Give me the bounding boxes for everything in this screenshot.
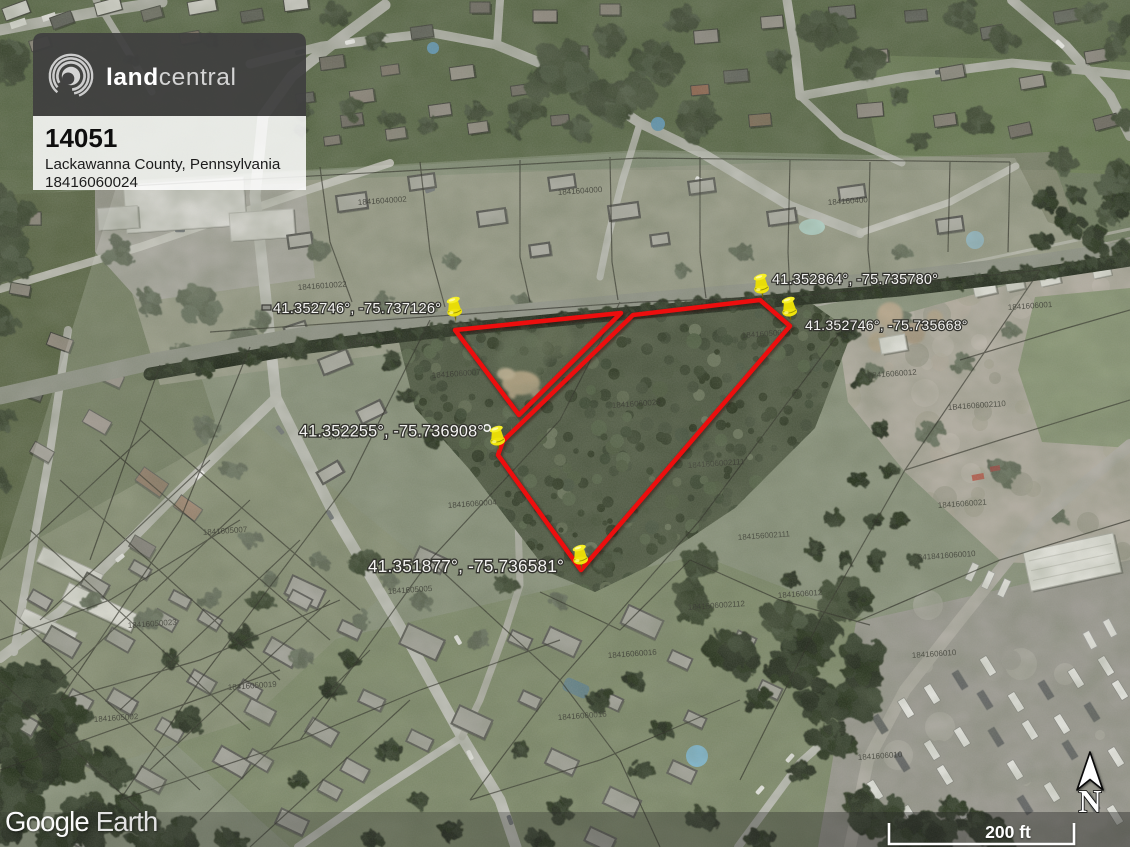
- svg-text:41.352255°, -75.736908°: 41.352255°, -75.736908°: [299, 423, 484, 441]
- svg-text:18416060024: 18416060024: [45, 174, 138, 191]
- svg-text:200 ft: 200 ft: [985, 822, 1031, 842]
- svg-text:landcentral: landcentral: [106, 64, 237, 91]
- svg-text:Google Earth: Google Earth: [5, 806, 157, 837]
- svg-text:N: N: [1078, 783, 1101, 819]
- svg-text:41.352746°, -75.735668°: 41.352746°, -75.735668°: [805, 318, 968, 334]
- svg-text:41.352746°, -75.737126°: 41.352746°, -75.737126°: [273, 301, 441, 317]
- svg-text:41.352864°, -75.735780°: 41.352864°, -75.735780°: [772, 272, 938, 288]
- svg-text:41.351877°, -75.736581°: 41.351877°, -75.736581°: [368, 556, 564, 576]
- svg-text:14051: 14051: [45, 123, 117, 153]
- svg-text:Lackawanna County, Pennsylvani: Lackawanna County, Pennsylvania: [45, 156, 281, 173]
